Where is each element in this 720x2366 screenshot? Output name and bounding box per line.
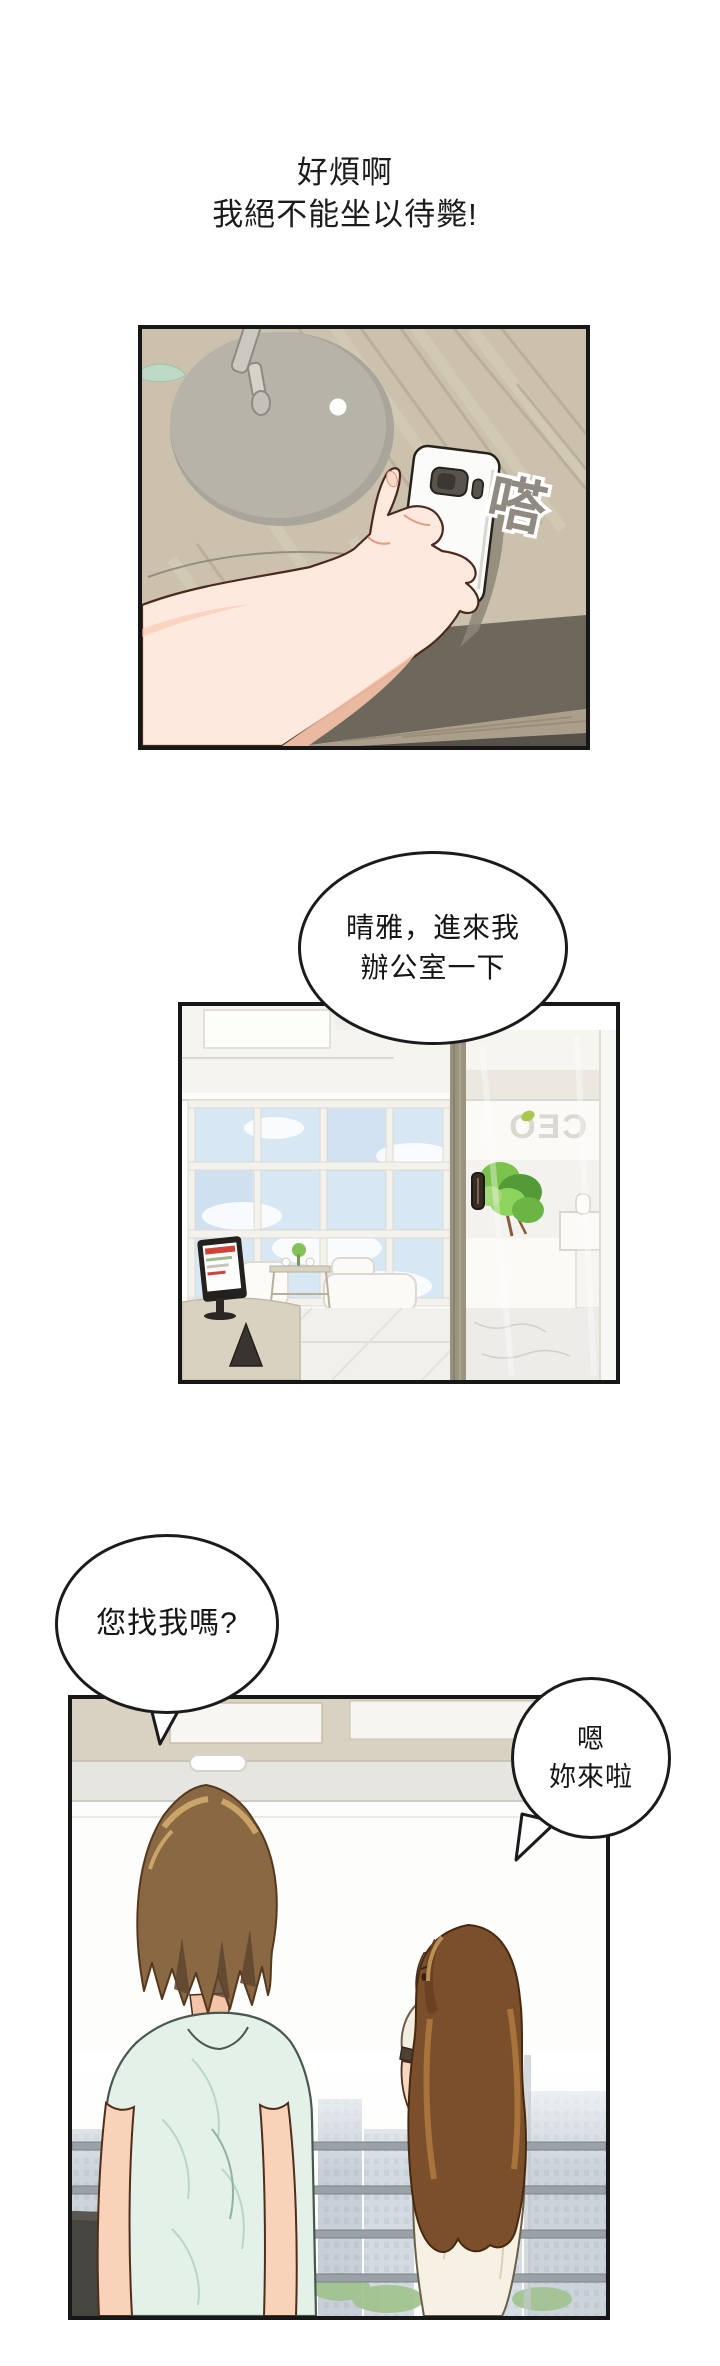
narration-line-2: 我絕不能坐以待斃! — [0, 194, 690, 236]
right-wall — [600, 1030, 616, 1380]
comic-page: 好煩啊 我絕不能坐以待斃! — [0, 0, 720, 2366]
woman-eye — [422, 1973, 427, 1981]
comic-panel-ceo-office: CEO — [178, 1002, 620, 1384]
desk-phone-art: 嗒 — [142, 329, 586, 746]
man-right-arm — [260, 2103, 297, 2316]
bubble-text-line: 您找我嗎? — [96, 1604, 238, 1644]
comic-panel-desk-phone: 嗒 — [138, 325, 590, 750]
ceo-door: CEO — [466, 1030, 616, 1380]
bubble-text-line: 晴雅，進來我 — [346, 908, 520, 948]
ceo-office-art: CEO — [182, 1006, 616, 1380]
ceiling-light — [190, 1755, 246, 1771]
speech-bubble-boss-reply: 嗯 妳來啦 — [511, 1677, 671, 1839]
narration-line-1: 好煩啊 — [0, 152, 690, 194]
speech-bubble-boss-call: 晴雅，進來我 辦公室一下 — [298, 851, 568, 1045]
man-left-arm — [98, 2103, 134, 2316]
speech-bubble-qingya-ask: 您找我嗎? — [55, 1534, 279, 1714]
ceo-door-sign: CEO — [507, 1108, 587, 1146]
character-woman — [400, 1925, 526, 2316]
narration-text: 好煩啊 我絕不能坐以待斃! — [0, 152, 690, 236]
desk-lamp-base — [170, 332, 394, 526]
bubble-text-line: 妳來啦 — [549, 1758, 633, 1796]
bubble-text-line: 辦公室一下 — [360, 948, 505, 988]
ceo-door-frame — [450, 1006, 466, 1380]
bubble-text-line: 嗯 — [577, 1720, 605, 1758]
